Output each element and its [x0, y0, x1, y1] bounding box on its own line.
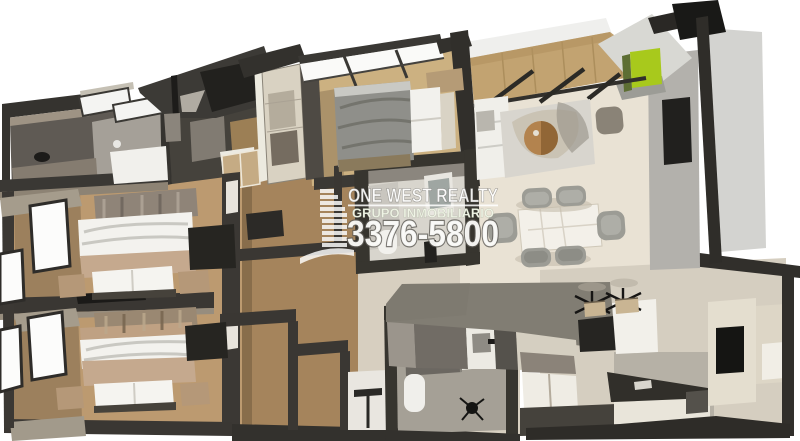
svg-text:3376-5800: 3376-5800: [347, 213, 499, 254]
svg-text:ONE WEST REALTY: ONE WEST REALTY: [348, 185, 498, 207]
